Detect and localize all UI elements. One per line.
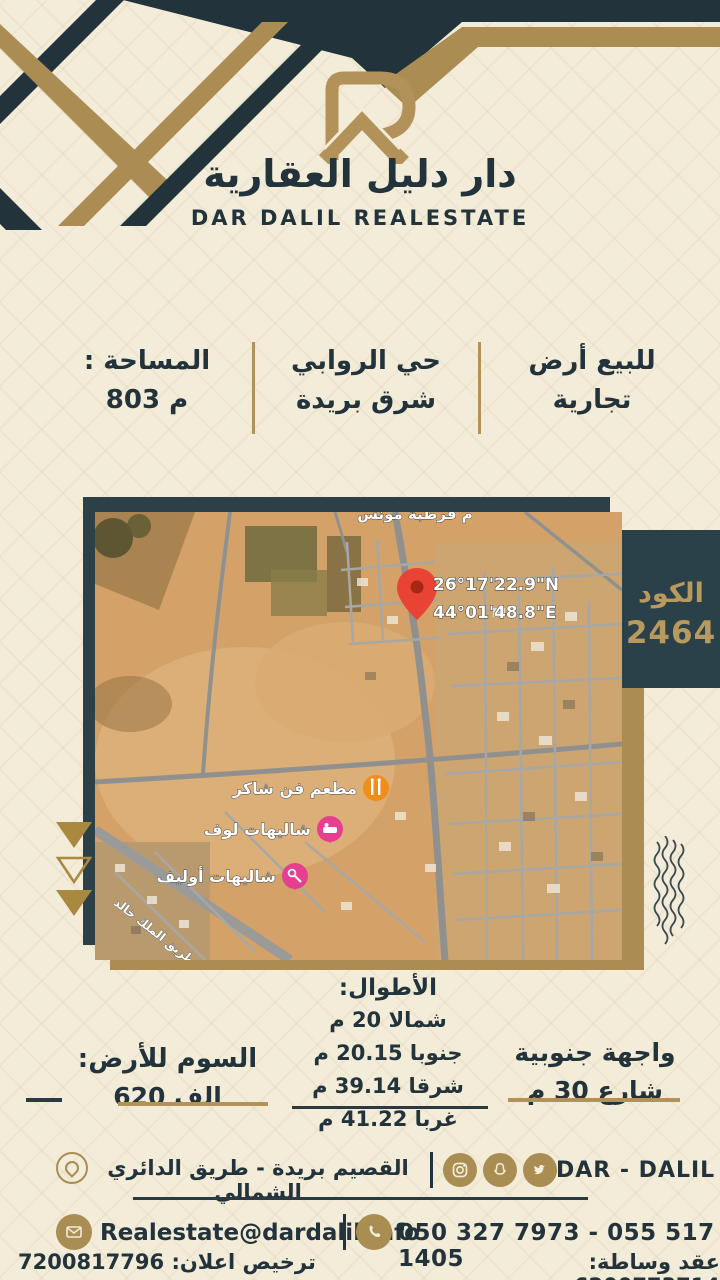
social-icons xyxy=(443,1153,557,1187)
brokerage-contract-value: 6200773714 xyxy=(574,1274,720,1280)
facade-line1: واجهة جنوبية xyxy=(485,1034,705,1072)
listing-district: حي الروابي شرق بريدة xyxy=(266,342,466,420)
map-coordinate-north: 26°17'22.9"N xyxy=(433,575,559,595)
wave-ornament xyxy=(653,836,687,948)
ad-license-label: ترخيص اعلان: xyxy=(171,1250,315,1274)
map-top-cutoff-label: م قرطبة مونس xyxy=(357,512,472,523)
twitter-icon[interactable] xyxy=(523,1153,557,1187)
contact-divider-bar xyxy=(343,1214,346,1250)
code-value: 2464 xyxy=(622,615,720,651)
map-coordinate-east: 44°01'48.8"E xyxy=(433,603,556,623)
chalet2-poi-label: شاليهات أوليف xyxy=(156,866,276,886)
listing-type-line1: للبيع أرض xyxy=(492,342,692,381)
facade-line2: شارع 30 م xyxy=(485,1072,705,1110)
length-north: شمالا 20 م xyxy=(258,1004,518,1037)
snapchat-icon[interactable] xyxy=(483,1153,517,1187)
info-divider-left xyxy=(252,342,255,434)
listing-type-line2: تجارية xyxy=(492,381,692,420)
lengths-block: الأطوال: شمالا 20 م جنوبا 20.15 م شرقا 3… xyxy=(258,972,518,1136)
dar-dalil-logo-icon xyxy=(308,68,418,164)
footer-brand-name: DAR - DALIL xyxy=(556,1158,715,1183)
lengths-underline xyxy=(292,1106,488,1109)
brand-title-english: DAR DALIL REALESTATE xyxy=(110,206,610,230)
satellite-map: م قرطبة مونس 26°17'22.9"N 44°01'48.8"E م… xyxy=(95,512,622,960)
price-value: 620 الف xyxy=(55,1082,280,1111)
ad-license-value: 7200817796 xyxy=(18,1250,164,1274)
lengths-title: الأطوال: xyxy=(258,972,518,1004)
phone-icon xyxy=(356,1214,392,1250)
left-dash xyxy=(26,1098,62,1102)
instagram-icon[interactable] xyxy=(443,1153,477,1187)
area-value: 803 م xyxy=(52,381,242,420)
brand-title-arabic: دار دليل العقارية xyxy=(110,152,610,196)
restaurant-poi-label: مطعم فن شاكر xyxy=(232,779,357,798)
listing-area: المساحة : 803 م xyxy=(52,342,242,420)
info-divider-right xyxy=(478,342,481,434)
code-label: الكود xyxy=(622,578,720,609)
footer-divider-line xyxy=(133,1197,588,1200)
brokerage-contract-label: عقد وساطة: xyxy=(589,1250,720,1274)
property-code-panel: الكود 2464 xyxy=(622,530,720,688)
length-east: شرقا 39.14 م xyxy=(258,1070,518,1103)
badge-icon xyxy=(56,1152,88,1184)
length-south: جنوبا 20.15 م xyxy=(258,1037,518,1070)
brokerage-contract: عقد وساطة: 6200773714 xyxy=(452,1250,720,1280)
district-line2: شرق بريدة xyxy=(266,381,466,420)
chalet1-poi-label: شاليهات لوف xyxy=(204,820,311,839)
price-underline xyxy=(118,1102,268,1106)
ad-license: ترخيص اعلان: 7200817796 xyxy=(18,1250,316,1274)
footer-divider-bar xyxy=(430,1152,433,1188)
area-label: المساحة : xyxy=(52,342,242,381)
listing-type: للبيع أرض تجارية xyxy=(492,342,692,420)
email-icon xyxy=(56,1214,92,1250)
district-line1: حي الروابي xyxy=(266,342,466,381)
triangle-ornament xyxy=(54,820,94,920)
price-block: السوم للأرض: 620 الف xyxy=(55,1044,280,1111)
facade-underline xyxy=(508,1098,680,1102)
real-estate-flyer: دار دليل العقارية DAR DALIL REALESTATE ل… xyxy=(0,0,720,1280)
price-label: السوم للأرض: xyxy=(55,1044,280,1074)
